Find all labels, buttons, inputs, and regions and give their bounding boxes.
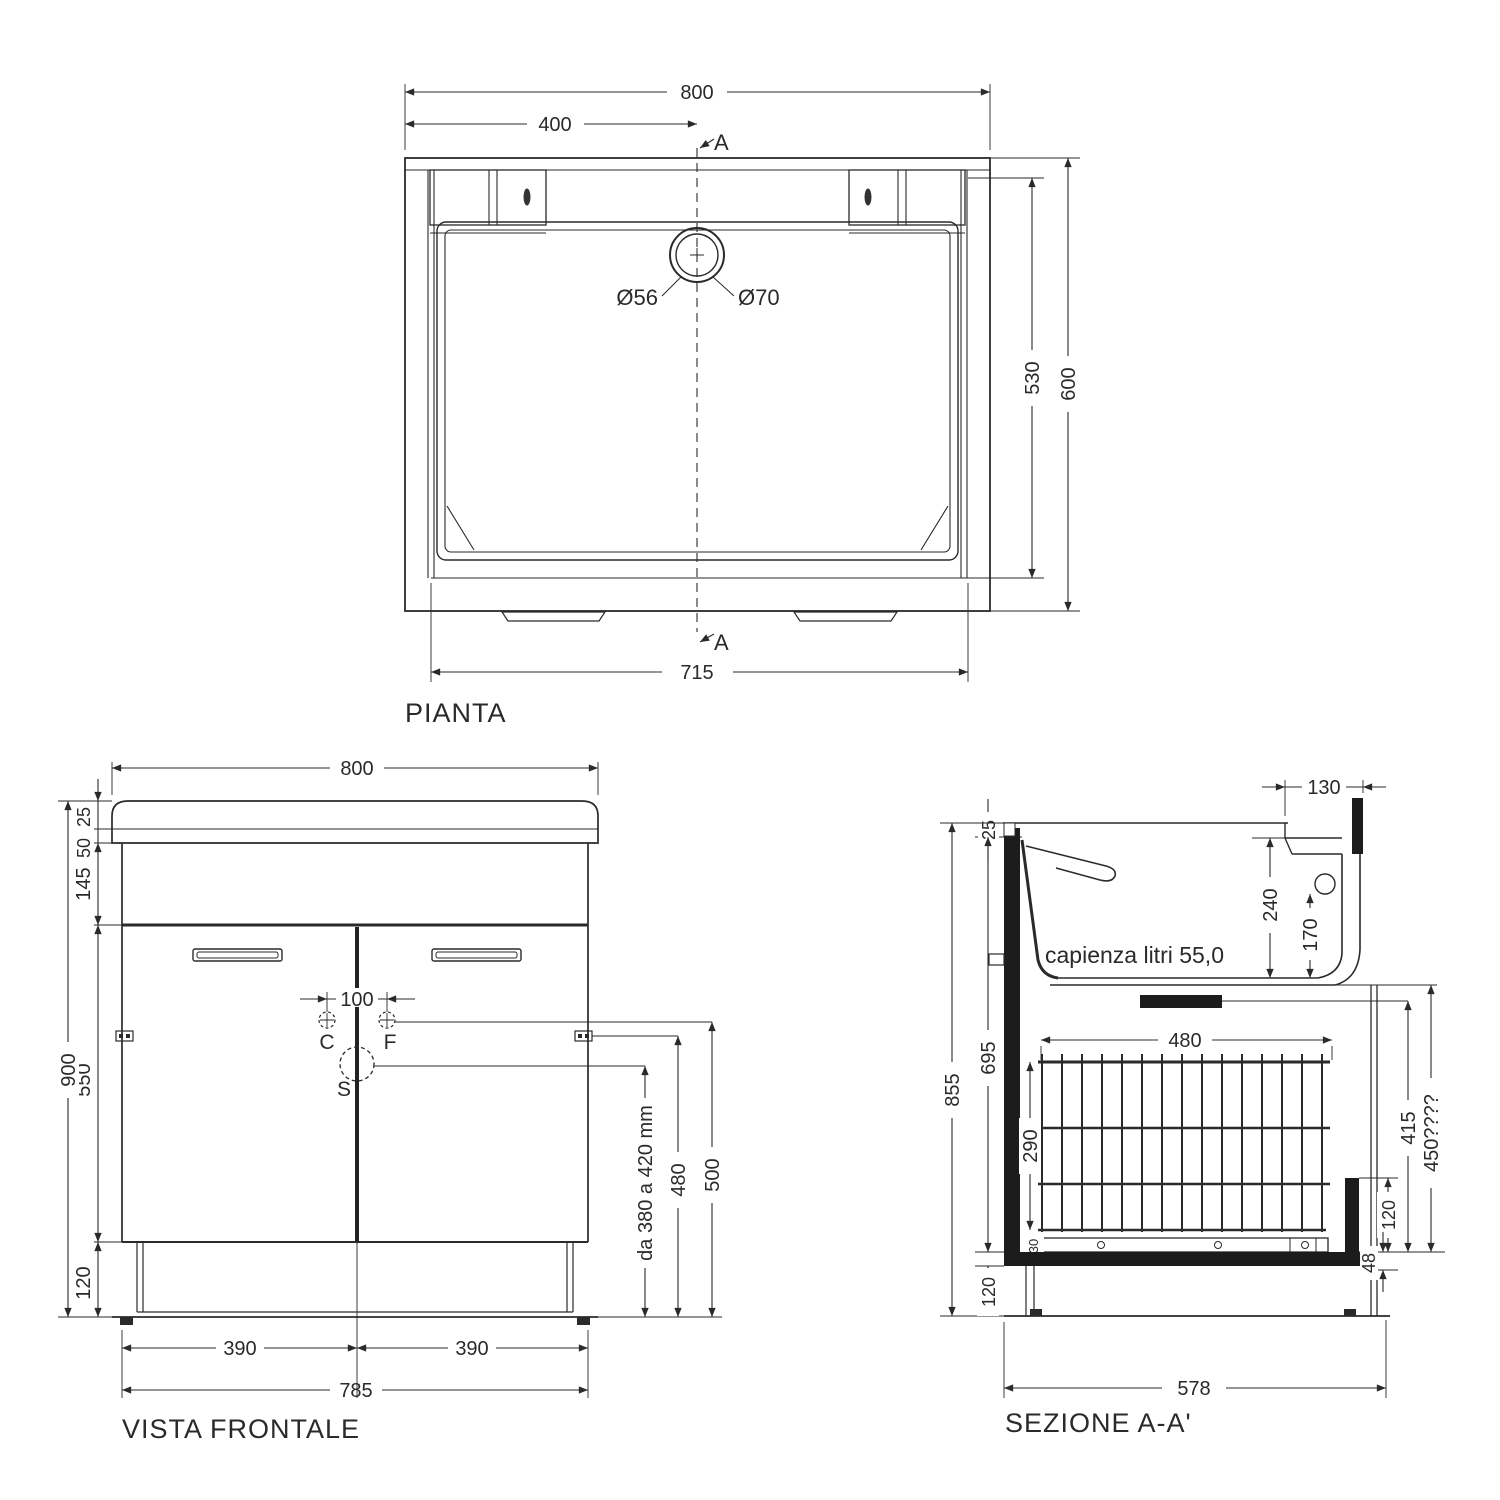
section-ledge — [1285, 823, 1342, 854]
section-dim-170-label: 170 — [1300, 918, 1322, 951]
plan-marker-a-top-label: A — [714, 130, 729, 155]
section-wall-bracket — [989, 954, 1004, 965]
section-rim-cap — [1004, 823, 1015, 836]
front-dim-785: 785 — [122, 1380, 588, 1402]
front-worktop — [112, 801, 598, 843]
front-hole-f: F — [379, 1012, 396, 1054]
plan-dim-600-label: 600 — [1058, 367, 1080, 400]
front-dim-900-label: 900 — [58, 1053, 80, 1086]
front-feet — [120, 1317, 590, 1325]
plan-marker-a-bottom-label: A — [714, 630, 729, 655]
section-dim-30-label: 30 — [1026, 1239, 1041, 1253]
front-dim-100-label: 100 — [340, 989, 373, 1011]
laundry-basket — [1036, 1054, 1330, 1252]
plan-dim-400-label: 400 — [538, 114, 571, 136]
section-dim-578-label: 578 — [1177, 1378, 1210, 1400]
section-dim-415-label: 415 — [1398, 1111, 1420, 1144]
plan-foot-left — [502, 612, 605, 621]
section-view-title: SEZIONE A-A' — [1005, 1408, 1192, 1438]
section-plinth — [1004, 1266, 1390, 1316]
section-dim-240-label: 240 — [1260, 888, 1282, 921]
front-dim-480-label: 480 — [668, 1163, 690, 1196]
front-hole-c: C — [319, 1012, 335, 1054]
front-dim-120-label: 120 — [73, 1266, 95, 1299]
section-dim-120-left: 120 — [975, 1266, 1004, 1316]
front-label-c: C — [319, 1031, 334, 1054]
section-washboard-profile — [1026, 846, 1115, 881]
plan-dim-530-label: 530 — [1022, 361, 1044, 394]
plan-dim-530: 530 — [968, 178, 1044, 578]
plan-foot-right — [794, 612, 897, 621]
section-bottom-panel — [1004, 1252, 1378, 1266]
section-dim-170: 170 — [1299, 894, 1322, 978]
section-dim-120-right: 120 — [1359, 1178, 1445, 1252]
plan-view: 800 400 A Ø56 Ø70 530 60 — [405, 82, 1080, 728]
section-overflow-hole — [1315, 874, 1335, 894]
front-dim-50-label: 50 — [74, 838, 94, 858]
section-tub-back-inner — [1318, 854, 1342, 978]
section-right-leaders — [1222, 985, 1437, 1001]
section-dim-48-label: 48 — [1359, 1253, 1379, 1273]
section-runner-bracket — [1345, 1178, 1359, 1254]
front-dim-390-right-label: 390 — [455, 1338, 488, 1360]
plan-dim-800-label: 800 — [680, 82, 713, 104]
section-dim-695: 695 — [975, 837, 1004, 1252]
plan-dim-715: 715 — [431, 583, 968, 684]
section-dim-290-label: 290 — [1020, 1129, 1042, 1162]
hinge-cup-right — [865, 189, 872, 206]
front-dim-800-label: 800 — [340, 758, 373, 780]
section-dim-240: 240 — [1252, 838, 1290, 978]
front-dim-500-label: 500 — [702, 1158, 724, 1191]
front-label-s: S — [337, 1078, 351, 1101]
front-hinge-right — [575, 1031, 592, 1041]
section-back-rim-bar — [1352, 798, 1363, 854]
plan-dim-800: 800 — [405, 82, 990, 150]
section-capacity-note: capienza litri 55,0 — [1045, 942, 1224, 968]
plan-hinge-block-right — [849, 170, 965, 233]
drawing-canvas: 800 400 A Ø56 Ø70 530 60 — [0, 0, 1500, 1500]
section-feet — [1030, 1309, 1356, 1316]
section-shelf-bar — [1140, 995, 1222, 1008]
section-dim-480-label: 480 — [1168, 1030, 1201, 1052]
front-dim-480: 480 — [666, 1036, 690, 1317]
front-dim-785-label: 785 — [339, 1380, 372, 1402]
front-hinge-left — [116, 1031, 133, 1041]
hinge-cup-left — [524, 189, 531, 206]
plan-dim-715-label: 715 — [680, 662, 713, 684]
section-dim-450-label: 450???? — [1421, 1094, 1443, 1172]
front-dim-800: 800 — [112, 758, 598, 795]
front-view: C F S 100 800 — [58, 758, 724, 1444]
front-view-title: VISTA FRONTALE — [122, 1414, 360, 1444]
drain-dia-outer-label: Ø70 — [738, 285, 780, 310]
section-view: capienza litri 55,0 130 25 240 170 — [940, 777, 1445, 1438]
front-dim-390-left-label: 390 — [223, 1338, 256, 1360]
basket-support-plate — [1036, 1238, 1328, 1252]
front-dim-25-label: 25 — [74, 807, 94, 827]
section-dim-130-label: 130 — [1307, 777, 1340, 799]
plan-section-marker-bottom: A — [700, 630, 729, 655]
section-dim-450: 450???? — [1420, 985, 1443, 1252]
front-dim-siphon-range: da 380 a 420 mm — [633, 1066, 657, 1317]
basket-wires — [1042, 1054, 1322, 1232]
section-dim-855-label: 855 — [942, 1073, 964, 1106]
section-dim-480: 480 — [1041, 1030, 1332, 1060]
section-dim-695-label: 695 — [978, 1041, 1000, 1074]
front-dim-100: 100 — [300, 988, 415, 1012]
section-dim-48: 48 — [1359, 1232, 1398, 1292]
front-label-f: F — [384, 1031, 397, 1054]
technical-drawing-page: 800 400 A Ø56 Ø70 530 60 — [0, 0, 1500, 1500]
drain-dia-inner-label: Ø56 — [616, 285, 658, 310]
front-plinth — [112, 1242, 598, 1325]
plan-view-title: PIANTA — [405, 698, 507, 728]
section-left-wall — [1004, 828, 1020, 1266]
front-dim-390-pair: 390 390 — [122, 1242, 588, 1398]
section-dim-415: 415 — [1397, 1001, 1420, 1252]
front-dim-siphon-label: da 380 a 420 mm — [635, 1105, 657, 1261]
front-leader-lines — [374, 1022, 712, 1066]
plan-section-marker-top: A — [700, 130, 729, 155]
section-dim-578: 578 — [1004, 1320, 1386, 1400]
plan-hinge-block-left — [430, 170, 546, 233]
front-handle-right — [432, 949, 521, 961]
front-dim-145-label: 145 — [73, 867, 95, 900]
front-handle-left — [193, 949, 282, 961]
plan-dim-400: 400 — [405, 114, 697, 136]
front-dim-left-stack: 25 50 145 550 120 — [73, 779, 122, 1317]
section-dim-130: 130 — [1262, 777, 1386, 816]
section-dim-120-right-label: 120 — [1379, 1200, 1399, 1230]
section-dim-120-left-label: 120 — [979, 1277, 999, 1307]
section-tub-bottom — [1050, 978, 1335, 985]
